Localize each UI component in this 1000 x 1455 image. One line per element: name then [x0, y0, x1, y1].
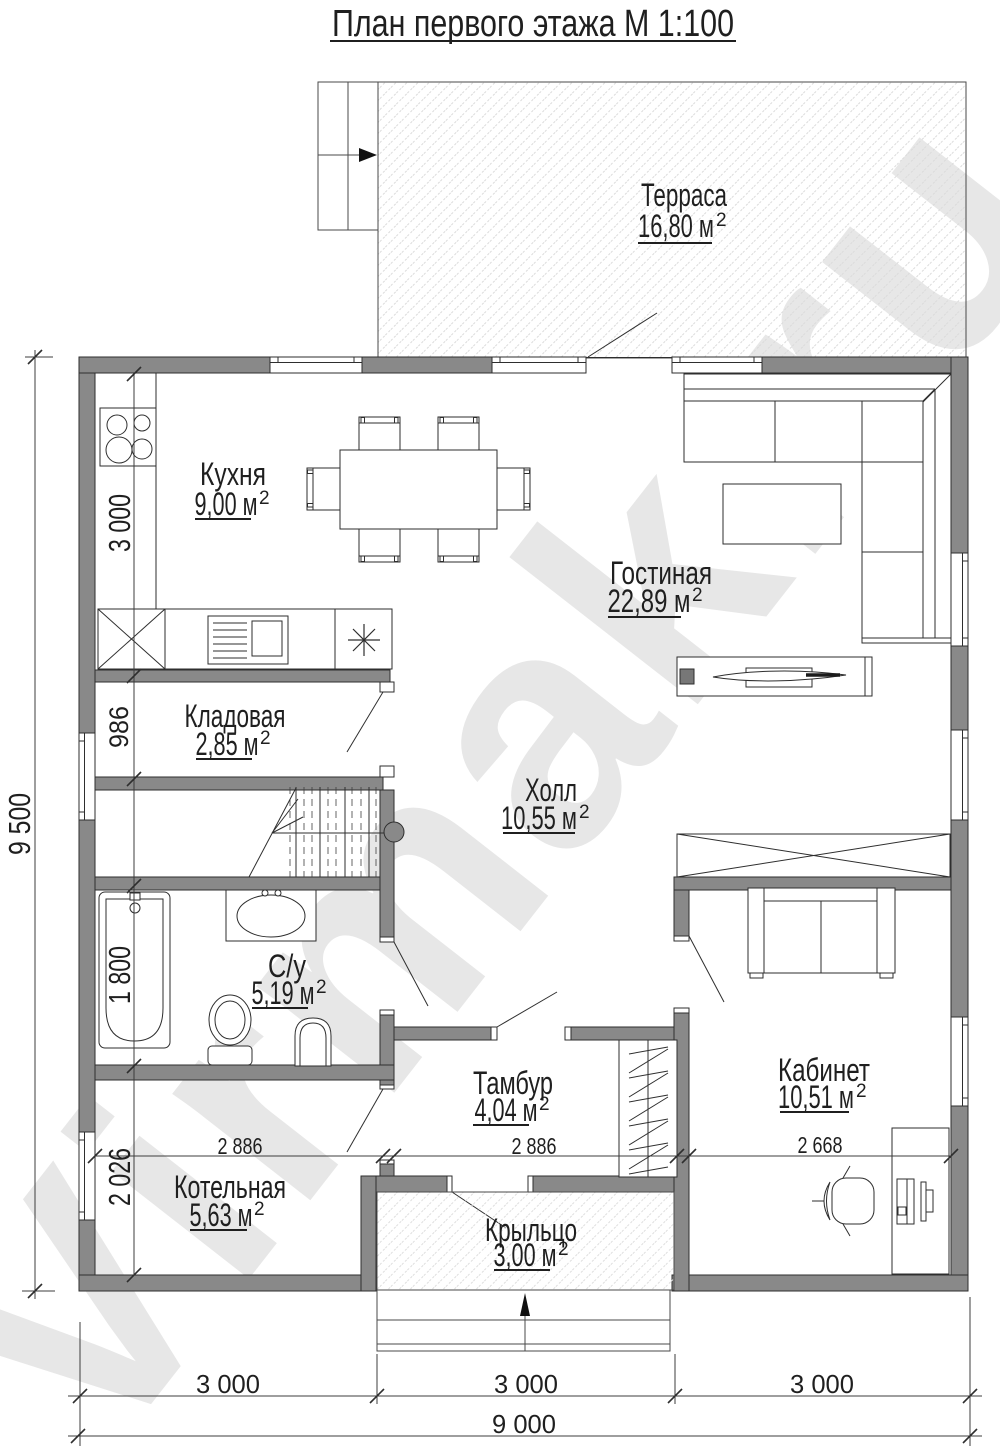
svg-text:2 668: 2 668 [798, 1132, 843, 1158]
svg-text:10,55 м: 10,55 м [501, 800, 577, 836]
svg-text:9,00 м: 9,00 м [195, 486, 258, 522]
svg-text:2: 2 [316, 977, 327, 998]
svg-text:2 886: 2 886 [512, 1133, 557, 1159]
svg-text:3 000: 3 000 [102, 494, 137, 552]
svg-text:2: 2 [259, 488, 270, 509]
svg-text:2 026: 2 026 [102, 1148, 137, 1206]
svg-text:22,89 м: 22,89 м [608, 583, 691, 619]
svg-text:986: 986 [104, 706, 134, 748]
svg-text:9 500: 9 500 [2, 793, 37, 855]
svg-text:3 000: 3 000 [196, 1369, 260, 1399]
svg-text:1 800: 1 800 [102, 946, 137, 1004]
svg-text:2,85 м: 2,85 м [196, 726, 259, 762]
svg-text:5,63 м: 5,63 м [190, 1197, 253, 1233]
svg-text:4,04 м: 4,04 м [475, 1092, 538, 1128]
svg-text:2: 2 [539, 1094, 550, 1115]
svg-text:2: 2 [716, 210, 727, 231]
svg-text:2: 2 [558, 1239, 569, 1260]
svg-text:10,51 м: 10,51 м [778, 1079, 854, 1115]
svg-text:3 000: 3 000 [790, 1369, 854, 1399]
svg-text:2: 2 [579, 802, 590, 823]
svg-text:2: 2 [856, 1081, 867, 1102]
svg-text:2: 2 [692, 585, 703, 606]
svg-text:9 000: 9 000 [492, 1409, 556, 1439]
svg-text:3 000: 3 000 [494, 1369, 558, 1399]
svg-text:2: 2 [260, 728, 271, 749]
svg-text:3,00 м: 3,00 м [494, 1237, 557, 1273]
svg-text:2 886: 2 886 [218, 1133, 263, 1159]
svg-text:План первого этажа М 1:100: План первого этажа М 1:100 [332, 3, 734, 45]
svg-text:5,19 м: 5,19 м [252, 975, 315, 1011]
svg-text:16,80 м: 16,80 м [638, 208, 714, 244]
svg-text:2: 2 [254, 1199, 265, 1220]
